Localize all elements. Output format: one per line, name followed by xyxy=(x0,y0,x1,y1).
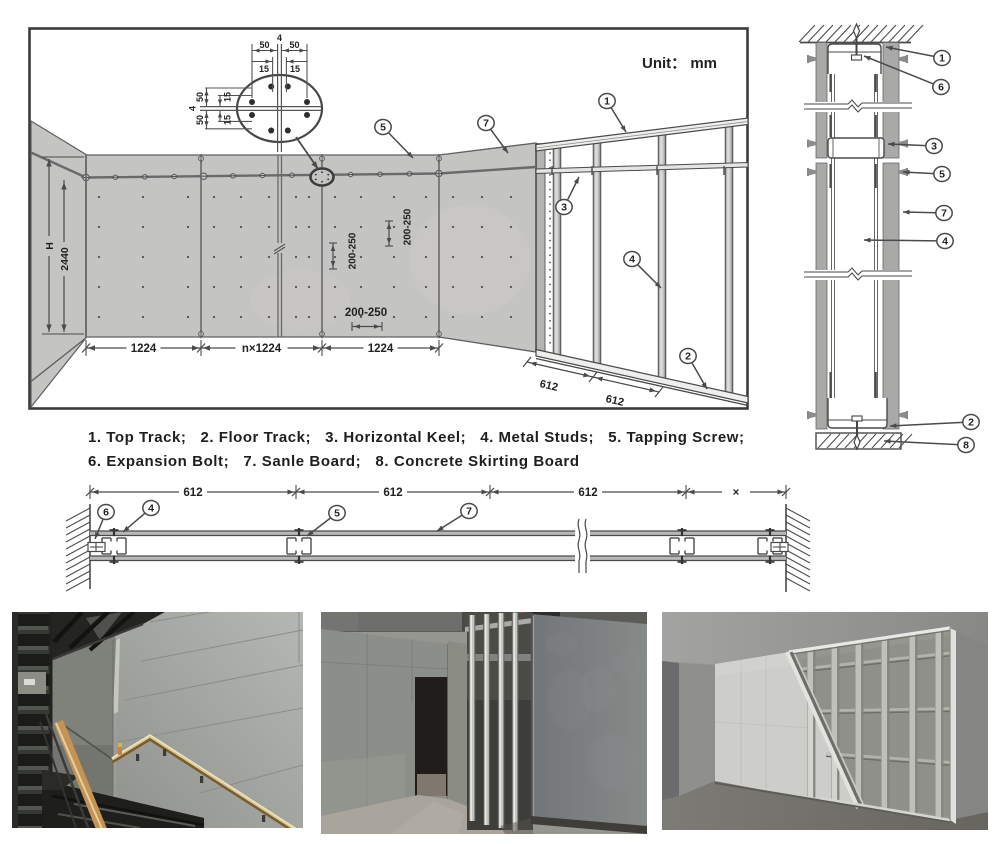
svg-text:3: 3 xyxy=(931,141,937,153)
svg-text:5: 5 xyxy=(334,508,340,520)
svg-text:1224: 1224 xyxy=(131,343,157,355)
svg-text:×: × xyxy=(733,487,740,499)
svg-text:200-250: 200-250 xyxy=(403,208,414,245)
svg-text:4: 4 xyxy=(277,33,282,43)
svg-text:5: 5 xyxy=(380,122,386,134)
svg-text:50: 50 xyxy=(195,92,205,102)
svg-text:7: 7 xyxy=(483,118,489,130)
svg-text:612: 612 xyxy=(183,487,202,499)
svg-text:1: 1 xyxy=(939,53,945,65)
svg-text:15: 15 xyxy=(223,92,233,102)
svg-text:2: 2 xyxy=(968,417,974,429)
svg-text:6. Expansion Bolt; 7. Sanle: 6. Expansion Bolt; 7. Sanle Board; 8. Co… xyxy=(88,453,579,470)
svg-text:15: 15 xyxy=(223,115,233,125)
svg-text:50: 50 xyxy=(259,40,269,50)
svg-text:200-250: 200-250 xyxy=(348,232,359,269)
svg-text:6: 6 xyxy=(938,82,944,94)
svg-text:612: 612 xyxy=(383,487,402,499)
svg-text:8: 8 xyxy=(963,440,969,452)
svg-text:Unit： mm: Unit： mm xyxy=(642,55,717,72)
svg-text:15: 15 xyxy=(259,64,269,74)
svg-text:15: 15 xyxy=(290,64,300,74)
svg-text:50: 50 xyxy=(195,115,205,125)
svg-text:50: 50 xyxy=(289,40,299,50)
svg-text:4: 4 xyxy=(148,503,154,515)
svg-text:2440: 2440 xyxy=(59,247,71,271)
svg-text:1224: 1224 xyxy=(368,343,394,355)
svg-text:H: H xyxy=(44,242,56,250)
svg-text:5: 5 xyxy=(939,169,945,181)
svg-text:4: 4 xyxy=(629,254,635,266)
svg-text:7: 7 xyxy=(466,506,472,518)
svg-text:1. Top Track; 2. Floor Track: 1. Top Track; 2. Floor Track; 3. Horizon… xyxy=(88,429,744,446)
svg-text:n×1224: n×1224 xyxy=(242,343,282,355)
svg-text:4: 4 xyxy=(942,236,948,248)
svg-text:6: 6 xyxy=(103,507,109,519)
svg-text:4: 4 xyxy=(188,106,198,111)
svg-text:1: 1 xyxy=(604,96,610,108)
svg-text:3: 3 xyxy=(561,202,567,214)
svg-text:2: 2 xyxy=(685,351,691,363)
svg-text:200-250: 200-250 xyxy=(345,307,387,319)
svg-text:7: 7 xyxy=(941,208,947,220)
svg-text:612: 612 xyxy=(578,487,597,499)
